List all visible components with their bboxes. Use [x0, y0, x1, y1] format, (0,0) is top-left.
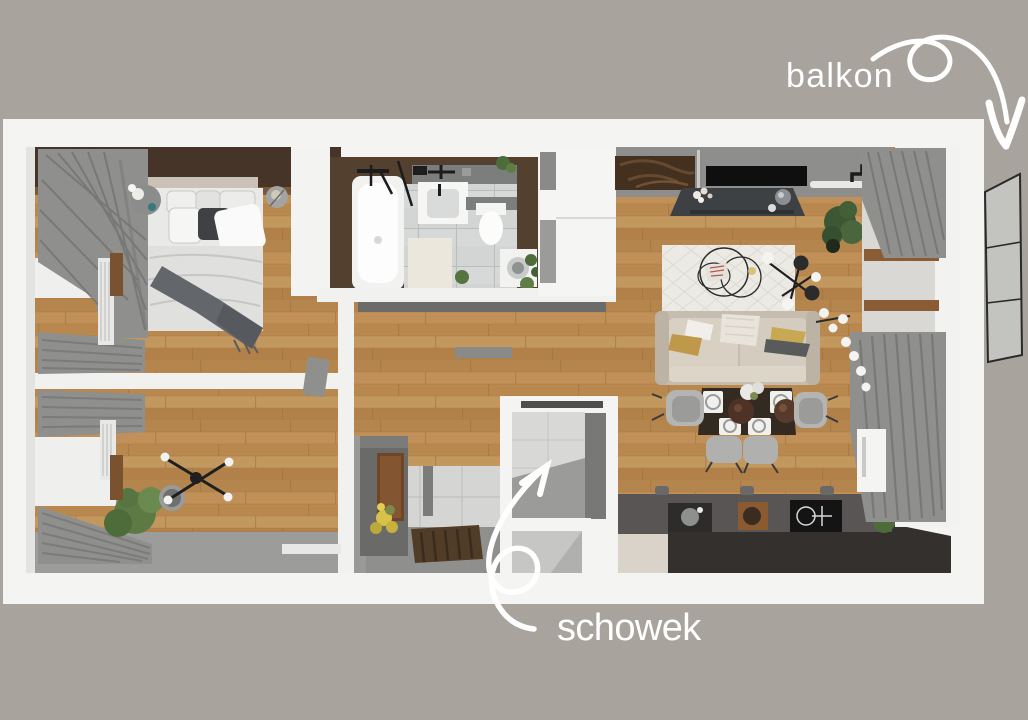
svg-text:balkon: balkon	[786, 57, 894, 95]
svg-text:schowek: schowek	[557, 607, 702, 649]
